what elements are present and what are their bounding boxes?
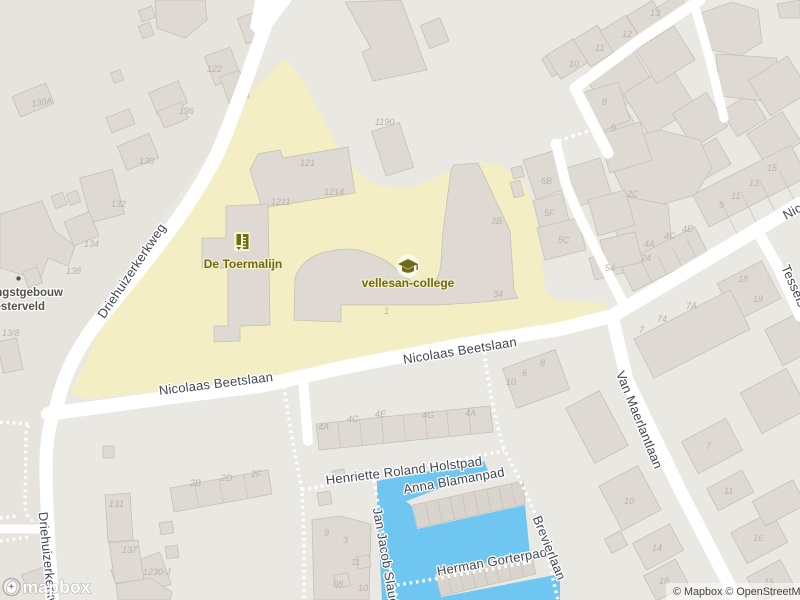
svg-text:19: 19: [753, 294, 763, 304]
svg-text:mapbox: mapbox: [23, 577, 91, 597]
svg-text:134: 134: [84, 239, 99, 249]
svg-text:2B: 2B: [189, 478, 201, 488]
svg-text:13: 13: [650, 8, 660, 18]
svg-text:1230-J: 1230-J: [143, 567, 171, 577]
svg-text:34: 34: [493, 289, 503, 299]
svg-text:10: 10: [506, 377, 516, 387]
svg-text:9: 9: [719, 200, 724, 210]
svg-text:130: 130: [139, 156, 154, 166]
svg-text:18: 18: [738, 274, 748, 284]
svg-text:122: 122: [207, 64, 222, 74]
svg-text:9: 9: [611, 123, 616, 133]
svg-text:esterveld: esterveld: [0, 301, 45, 313]
svg-text:5F: 5F: [544, 208, 555, 218]
svg-text:13: 13: [749, 178, 759, 188]
svg-text:3: 3: [343, 535, 348, 545]
svg-text:9: 9: [324, 528, 329, 538]
svg-text:3B: 3B: [491, 216, 502, 226]
svg-text:16: 16: [753, 533, 763, 543]
svg-text:4A: 4A: [644, 239, 655, 249]
svg-text:137: 137: [122, 545, 138, 555]
svg-text:ngstgebouw: ngstgebouw: [0, 287, 63, 299]
svg-text:4E: 4E: [682, 224, 694, 234]
svg-text:10: 10: [569, 59, 579, 69]
svg-text:15: 15: [767, 163, 778, 173]
svg-text:13/8: 13/8: [2, 328, 20, 338]
svg-text:10: 10: [358, 583, 368, 593]
svg-text:8: 8: [540, 358, 545, 368]
svg-text:11: 11: [731, 191, 740, 201]
svg-text:4C: 4C: [347, 414, 359, 424]
svg-text:54: 54: [605, 263, 615, 273]
svg-text:74: 74: [657, 314, 667, 324]
svg-text:6: 6: [522, 368, 527, 378]
svg-text:4E: 4E: [375, 409, 387, 419]
svg-text:2C: 2C: [626, 189, 639, 199]
svg-text:4A: 4A: [318, 422, 329, 432]
svg-text:5C: 5C: [558, 235, 570, 245]
svg-text:6B: 6B: [541, 176, 552, 186]
svg-text:vellesan-college: vellesan-college: [362, 276, 455, 290]
svg-text:1211: 1211: [271, 197, 290, 207]
svg-text:121: 121: [300, 158, 315, 168]
svg-text:132: 132: [111, 199, 126, 209]
svg-text:De Toermalijn: De Toermalijn: [204, 257, 282, 271]
svg-text:2F: 2F: [250, 469, 262, 479]
svg-text:4C: 4C: [664, 231, 676, 241]
svg-text:12: 12: [622, 29, 632, 39]
svg-text:11: 11: [351, 557, 360, 567]
svg-text:08: 08: [333, 579, 343, 589]
svg-text:8: 8: [602, 97, 607, 107]
svg-text:© Mapbox © OpenStreetMap: © Mapbox © OpenStreetMap: [673, 586, 800, 598]
svg-text:4A: 4A: [465, 408, 476, 418]
svg-text:1: 1: [384, 306, 389, 316]
svg-text:14: 14: [652, 543, 662, 553]
svg-text:7A: 7A: [686, 301, 697, 311]
svg-text:1190: 1190: [375, 117, 394, 127]
svg-text:24: 24: [640, 253, 651, 263]
svg-text:11: 11: [724, 486, 733, 496]
svg-text:10: 10: [624, 496, 634, 506]
svg-text:138: 138: [66, 266, 81, 276]
svg-text:11: 11: [595, 43, 604, 53]
svg-text:1214: 1214: [324, 187, 344, 197]
svg-text:4G: 4G: [422, 410, 434, 420]
svg-text:2D: 2D: [220, 473, 233, 483]
svg-text:136: 136: [179, 106, 194, 116]
svg-text:131: 131: [109, 499, 124, 509]
